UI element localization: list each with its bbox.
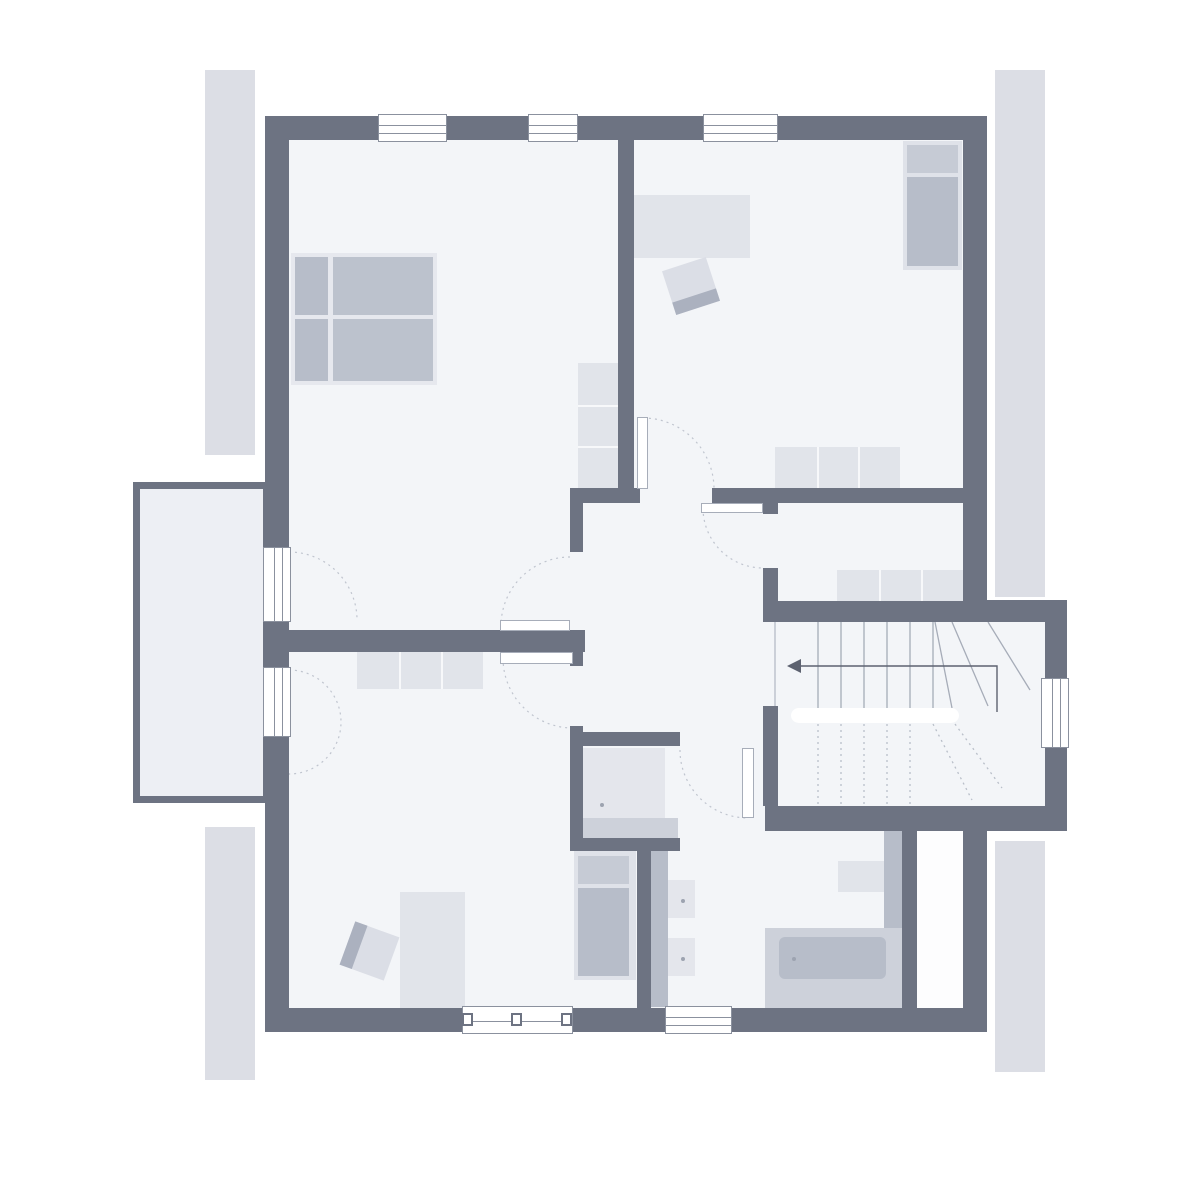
window-top-3-pane: [704, 125, 777, 126]
wall-shower-bottom: [570, 838, 680, 851]
window-stairwell-pane: [1060, 679, 1061, 747]
wall-storage-door-stub: [763, 503, 778, 514]
window-stairwell: [1041, 678, 1069, 748]
double-bed-part: [295, 319, 328, 381]
wardrobe: [578, 363, 620, 488]
dresser-divider: [441, 649, 443, 689]
window-top-3-pane: [704, 133, 777, 134]
window-stairwell-pane: [1052, 679, 1053, 747]
door-leaf-bathroom: [742, 748, 754, 818]
single-bed-part: [578, 856, 629, 884]
roof-edge-right-lower: [995, 841, 1045, 1072]
wall-mid-left: [289, 630, 585, 652]
floor-stairwell: [963, 622, 1045, 806]
wall-stair-hall: [763, 706, 778, 806]
window-top-1-pane: [379, 125, 446, 126]
wall-hall-left-upper: [570, 503, 583, 552]
dresser-divider: [399, 649, 401, 689]
roof-edge-left-lower: [205, 827, 255, 1080]
single-bed-part: [578, 888, 629, 976]
window-top-2-pane: [529, 133, 577, 134]
toilet: [838, 861, 884, 892]
bathtub-drain: [792, 957, 796, 961]
floor-plan: [0, 0, 1200, 1200]
wall-shower-top: [570, 732, 680, 746]
roof-edge-left-upper: [205, 70, 255, 455]
door-leaf-top-left-room: [500, 620, 570, 631]
window-top-1: [378, 114, 447, 142]
floor-duct: [917, 822, 963, 1008]
wall-outer-right-upper: [963, 116, 987, 613]
wall-outer-bottom: [265, 1008, 987, 1032]
vanity-counter: [651, 851, 668, 1007]
shower-step: [583, 818, 678, 838]
balcony-door-lower-pane: [274, 668, 275, 736]
double-bed-part: [295, 257, 328, 315]
sideboard-divider: [817, 447, 819, 489]
window-bottom-wide-post: [511, 1013, 522, 1026]
wall-hall-top-left: [570, 488, 640, 503]
desk: [400, 892, 465, 1008]
balcony-door-lower: [263, 667, 291, 737]
door-leaf-top-right-room: [637, 417, 648, 489]
window-bottom-wide-post: [561, 1013, 572, 1026]
wall-hall-top-right: [712, 488, 963, 503]
wall-stair-top: [763, 601, 985, 622]
single-bed-part: [907, 145, 958, 173]
single-bed-part: [907, 177, 958, 266]
balcony-door-upper: [263, 547, 291, 622]
window-bath-pane: [666, 1017, 731, 1018]
roof-edge-right-upper: [995, 70, 1045, 597]
sink-drain: [681, 957, 685, 961]
wardrobe-divider: [578, 446, 620, 448]
shower-drain: [600, 803, 604, 807]
window-bottom-wide-post: [462, 1013, 473, 1026]
window-top-2-pane: [529, 125, 577, 126]
balcony: [133, 482, 270, 803]
window-top-2: [528, 114, 578, 142]
wall-outer-top: [265, 116, 987, 140]
balcony-door-upper-pane: [274, 548, 275, 621]
balcony-door-upper-pane: [282, 548, 283, 621]
window-bath: [665, 1006, 732, 1034]
wardrobe-divider: [578, 405, 620, 407]
wall-bath-left: [637, 851, 651, 1008]
balcony-door-lower-pane: [282, 668, 283, 736]
wall-top-rooms-divider: [618, 140, 634, 490]
toilet-cistern: [884, 820, 902, 928]
sink-drain: [681, 899, 685, 903]
door-leaf-bottom-left-room: [500, 652, 573, 664]
window-top-3: [703, 114, 778, 142]
sideboard-divider: [858, 447, 860, 489]
sideboard: [775, 447, 900, 489]
double-bed-part: [333, 257, 433, 315]
window-top-1-pane: [379, 133, 446, 134]
wall-bath-right: [902, 810, 917, 1008]
door-leaf-storage-room: [701, 503, 763, 513]
dresser: [357, 649, 483, 689]
wall-outer-right-lower: [963, 810, 987, 1032]
shower-tray: [583, 748, 665, 818]
window-bath-pane: [666, 1025, 731, 1026]
desk: [633, 195, 750, 258]
double-bed-part: [333, 319, 433, 381]
